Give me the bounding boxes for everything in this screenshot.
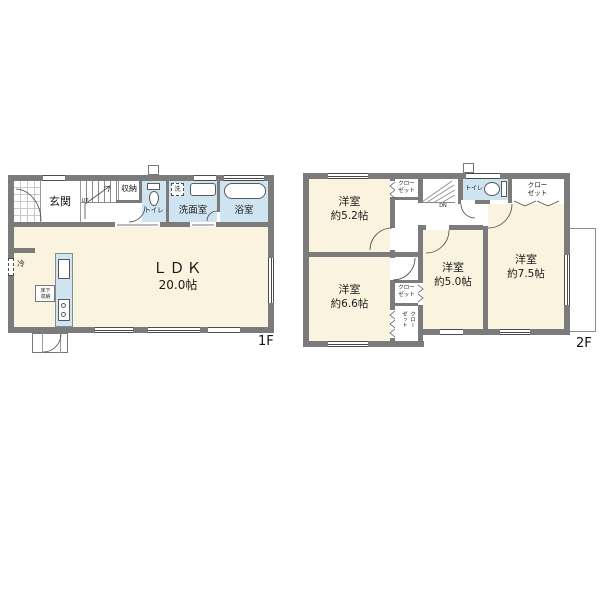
washing-machine-icon: 洗 — [171, 183, 184, 196]
bedroom-5_2-size: 約5.2帖 — [309, 210, 390, 223]
closet-label: クローゼット — [398, 309, 415, 329]
vent-icon — [148, 165, 159, 175]
balcony — [570, 228, 596, 332]
washer-label: 洗 — [174, 186, 180, 193]
sink-icon — [190, 183, 216, 196]
wall — [418, 179, 423, 203]
door-opening — [461, 200, 475, 204]
toilet-tank-icon — [147, 183, 160, 190]
bedroom-6_6-door-arc — [393, 258, 415, 280]
washroom-label: 洗面室 — [167, 205, 219, 217]
window — [95, 327, 133, 333]
floor1-label: 1F — [258, 334, 274, 349]
door-opening — [390, 228, 395, 250]
window — [43, 175, 65, 181]
window — [466, 173, 500, 179]
ldk-size-label: 20.0帖 — [108, 278, 248, 293]
door-opening — [190, 222, 216, 227]
window — [328, 341, 368, 347]
wall — [395, 303, 418, 306]
bathroom-label: 浴室 — [218, 205, 270, 217]
ldk-label: ＬＤＫ — [108, 259, 248, 278]
kitchen-sink-icon — [58, 259, 70, 279]
entry-step — [32, 333, 68, 353]
bedroom-6_6-size: 約6.6帖 — [309, 298, 390, 311]
door-opening — [426, 225, 449, 230]
vent-icon — [463, 163, 474, 173]
toilet-door-arc — [461, 204, 475, 218]
closet-opening — [390, 310, 395, 338]
window — [500, 329, 530, 335]
bedroom-7_5-size: 約7.5帖 — [488, 268, 564, 281]
window — [224, 175, 264, 181]
step-line — [60, 333, 61, 353]
wall — [564, 173, 570, 335]
burner-icon — [61, 303, 66, 308]
floor1-plan: 洗 床下収納 玄関 収納 トイレ 洗面室 浴室 ＬＤＫ 20.0帖 冷 UP — [8, 175, 274, 333]
wall — [309, 252, 418, 257]
bathtub-icon — [224, 183, 266, 199]
door-opening — [390, 258, 395, 280]
wall — [508, 179, 512, 203]
bedroom-5_2-label: 洋室 — [309, 195, 390, 209]
bedroom-5_0-size: 約5.0帖 — [423, 276, 483, 289]
door-opening — [115, 222, 160, 227]
burner-icon — [61, 312, 66, 317]
window — [268, 258, 274, 303]
window — [440, 329, 463, 335]
window — [208, 327, 240, 333]
floorplan-canvas: 洗 床下収納 玄関 収納 トイレ 洗面室 浴室 ＬＤＫ 20.0帖 冷 UP — [0, 0, 600, 599]
window — [564, 255, 570, 305]
bedroom-5_0-label: 洋室 — [423, 261, 483, 275]
entrance-porch-tiles — [14, 181, 40, 222]
wall — [8, 175, 14, 333]
bedroom-7_5-label: 洋室 — [488, 253, 564, 267]
storage-label: 収納 — [114, 184, 144, 194]
toilet-tank-icon — [501, 181, 507, 197]
closet-label: クローゼット — [397, 181, 416, 195]
closet-label: クローゼット — [397, 285, 416, 299]
floor-storage-box: 床下収納 — [35, 285, 55, 302]
closet-label: クローゼット — [527, 181, 548, 198]
stairs-up-label: UP — [76, 198, 94, 204]
staircase — [422, 179, 455, 203]
wall — [14, 248, 35, 253]
wall — [116, 200, 142, 203]
window — [148, 327, 200, 333]
closet-opening — [390, 181, 395, 197]
bedroom-6_6-label: 洋室 — [309, 283, 390, 297]
fridge-label: 冷 — [14, 259, 28, 268]
window — [194, 175, 216, 181]
stairs-down-label: DN — [434, 203, 452, 209]
wall — [395, 280, 418, 283]
wall — [268, 175, 274, 333]
step-line — [42, 333, 43, 353]
toilet-label: トイレ — [138, 206, 170, 214]
floor2-label: 2F — [576, 336, 592, 351]
toilet-icon — [484, 182, 500, 196]
door-opening — [483, 204, 488, 226]
toilet-label: トイレ — [462, 185, 486, 193]
floor2-plan: 洋室 約5.2帖 洋室 約6.6帖 洋室 約5.0帖 洋室 約7.5帖 クローゼ… — [303, 173, 573, 347]
floor-storage-label: 床下収納 — [39, 288, 52, 300]
window — [328, 173, 368, 179]
